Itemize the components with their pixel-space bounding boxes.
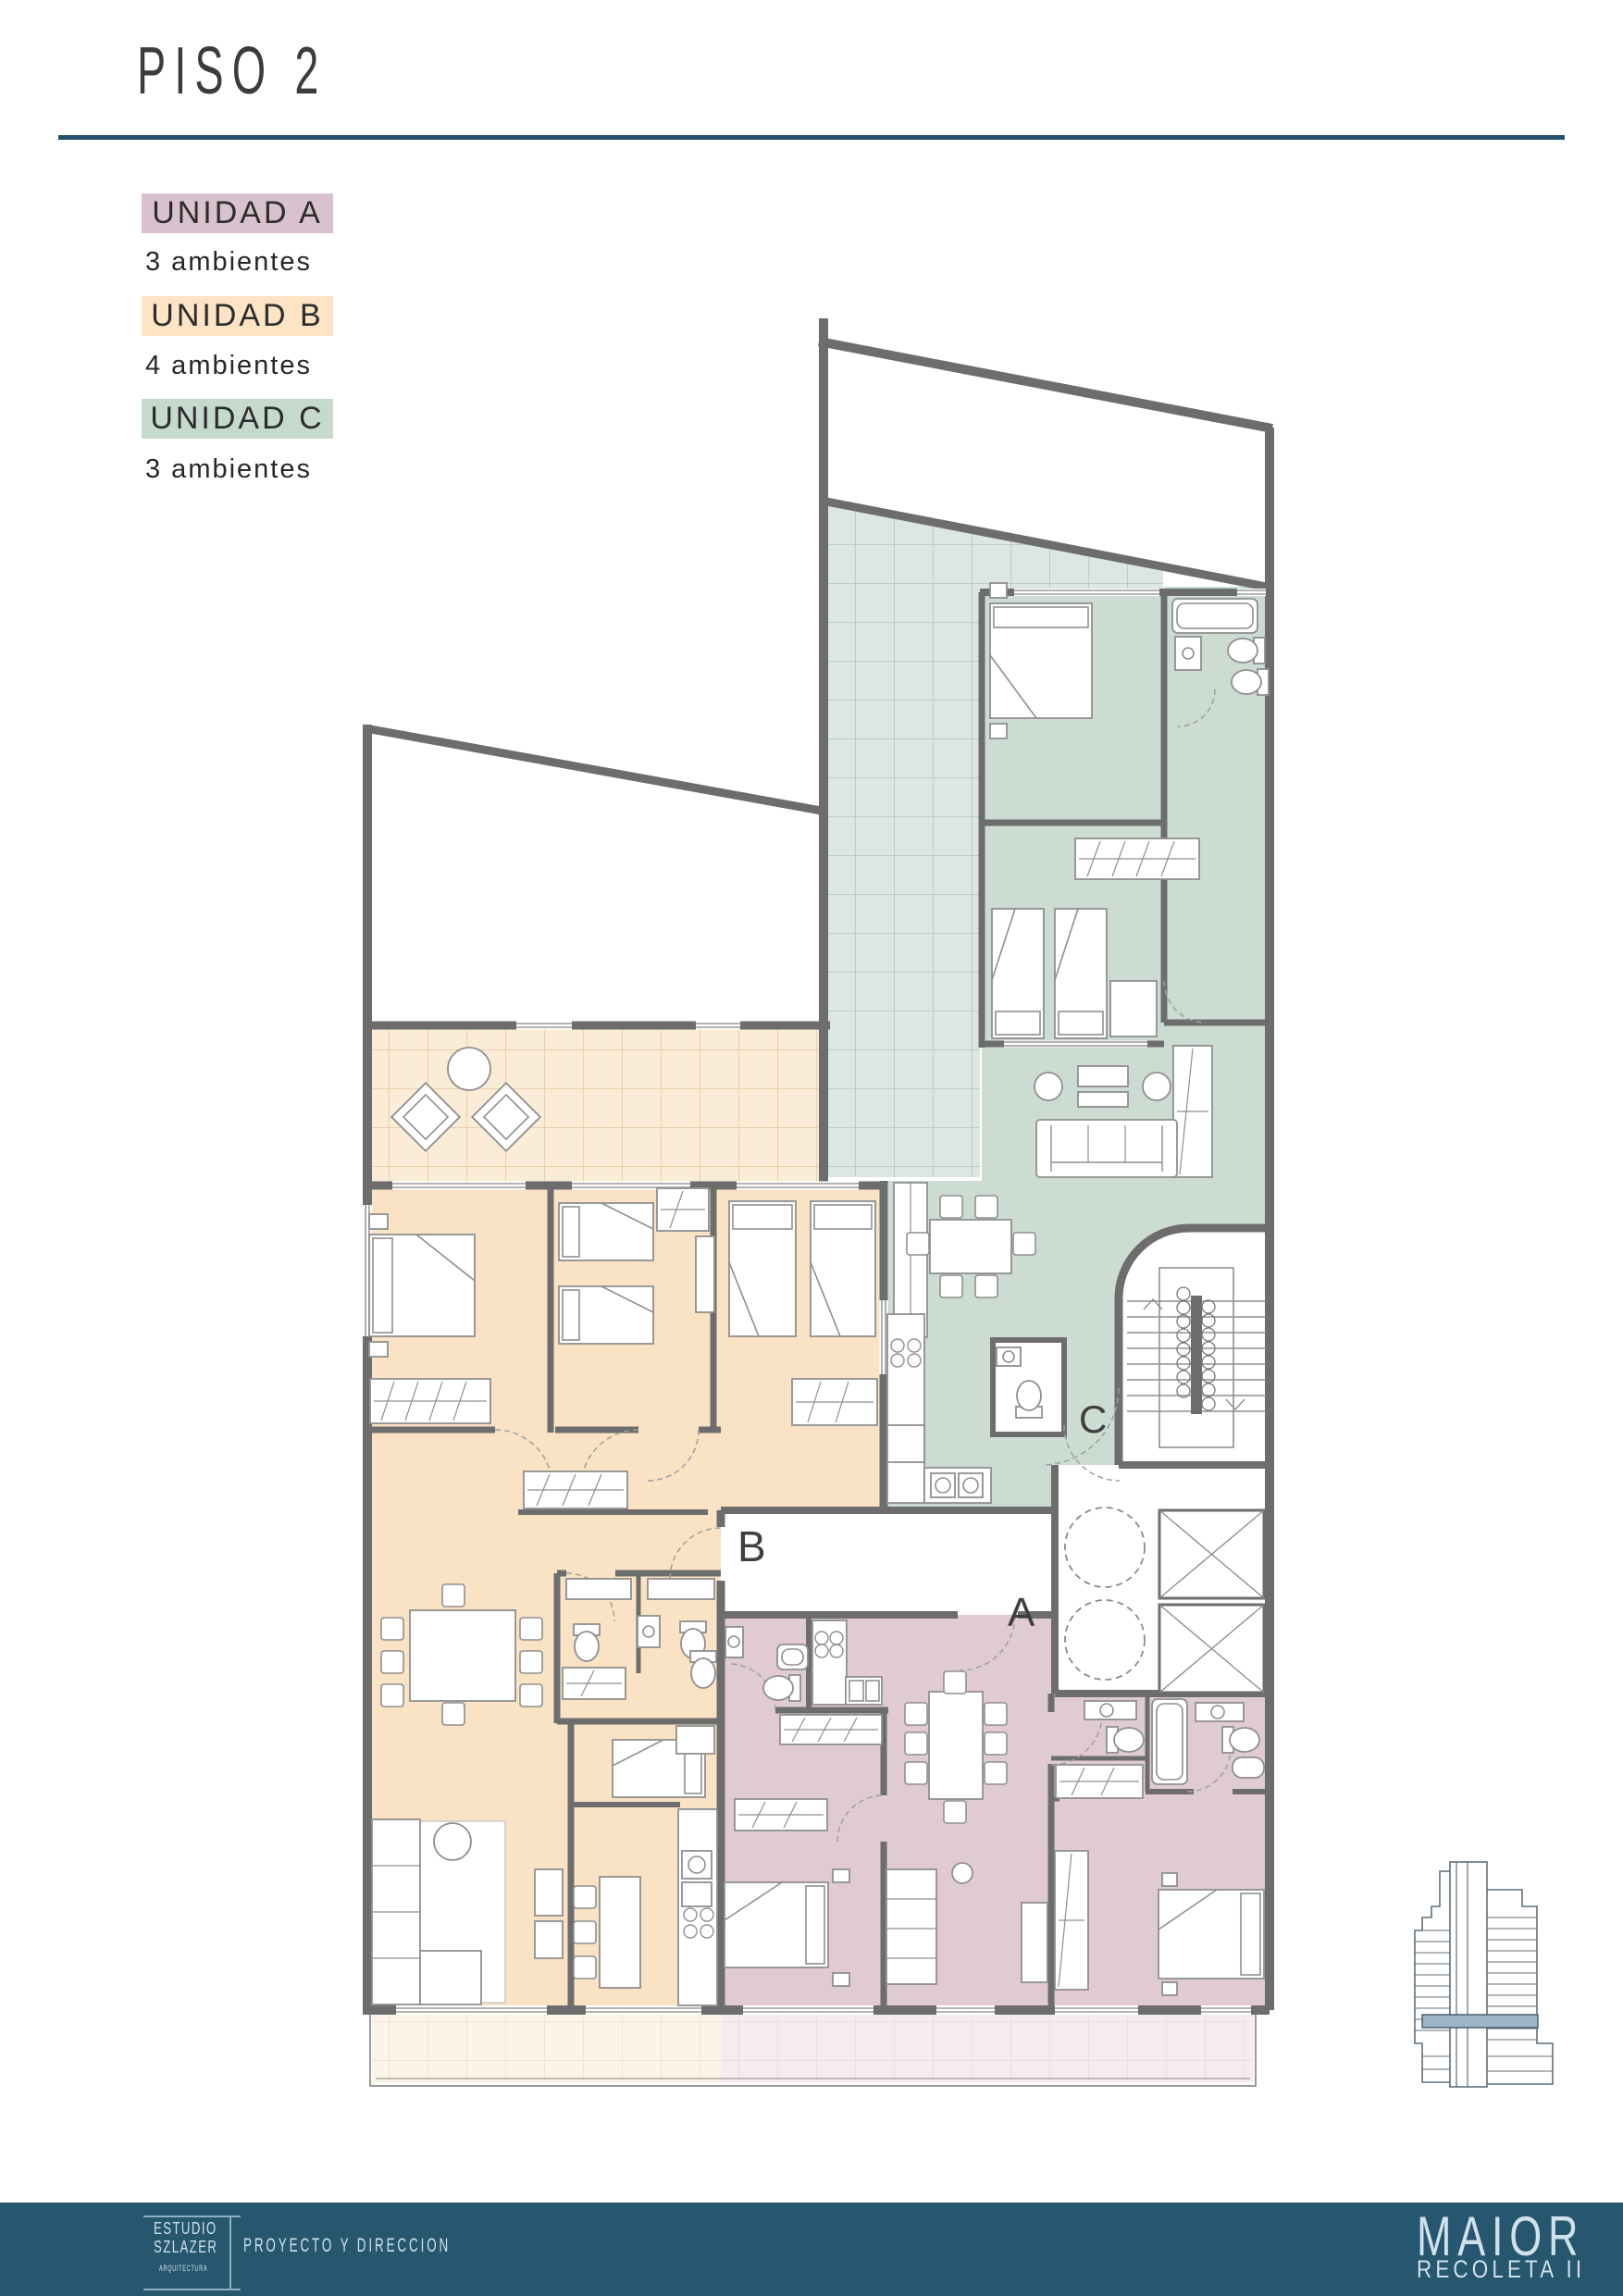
svg-text:B: B (737, 1522, 766, 1570)
svg-text:C: C (1079, 1397, 1107, 1441)
svg-text:A: A (1008, 1590, 1035, 1635)
